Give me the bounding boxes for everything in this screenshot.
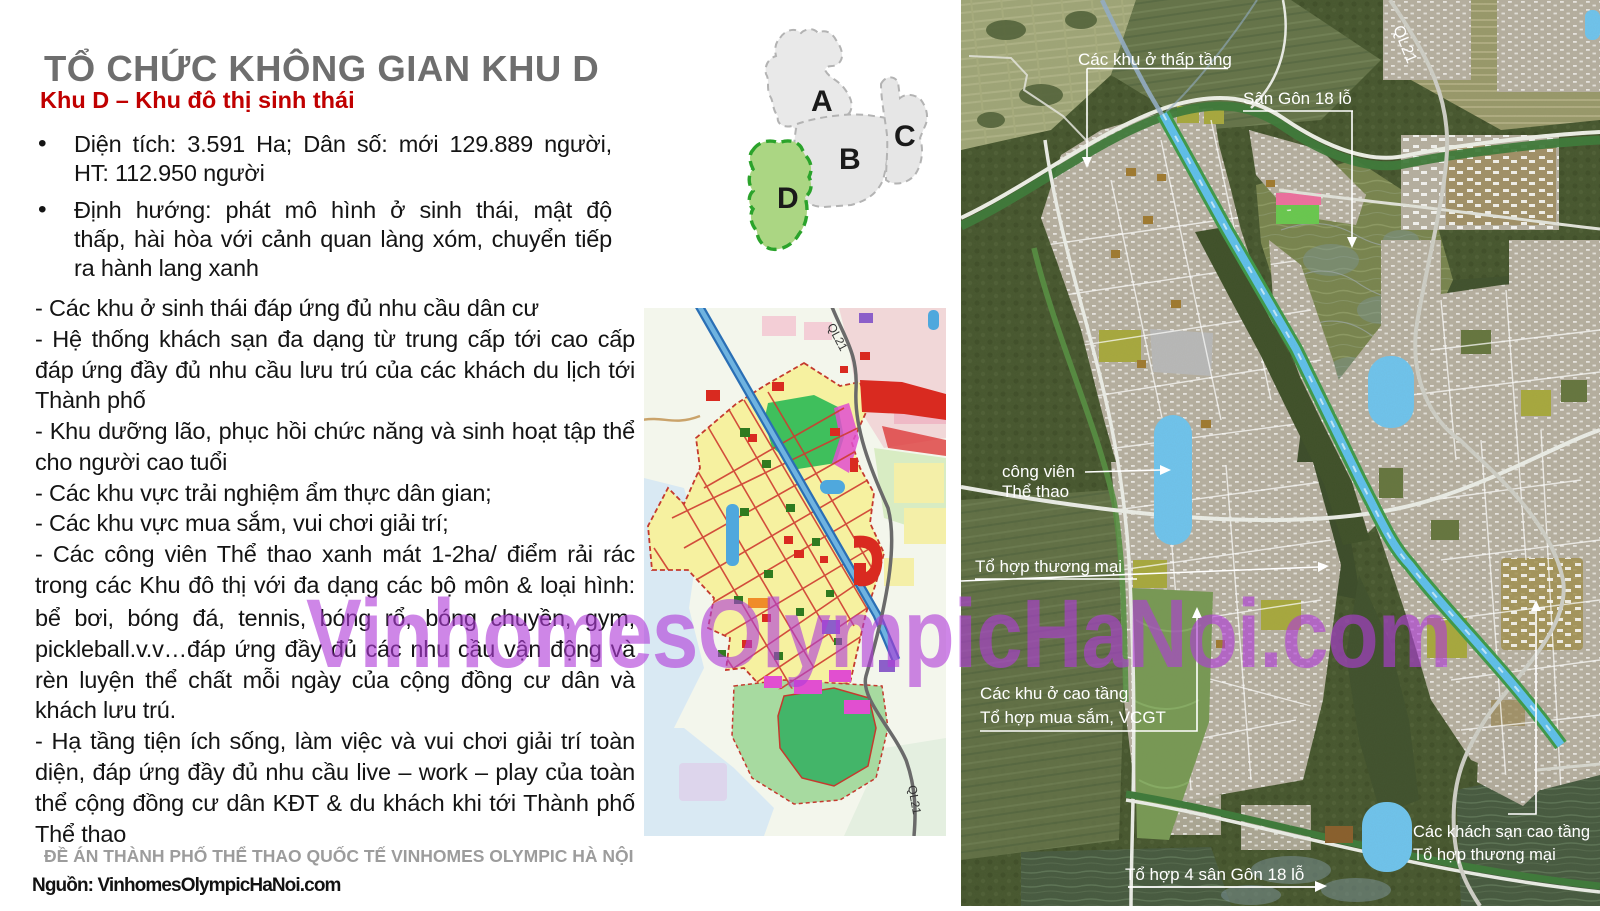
svg-text:A: A [811,85,833,118]
svg-text:C: C [894,120,916,153]
svg-text:Các khách sạn cao tầng: Các khách sạn cao tầng [1413,823,1590,841]
svg-text:B: B [839,143,861,176]
svg-text:Thể thao: Thể thao [1002,482,1069,501]
svg-text:Tổ hợp thương mại: Tổ hợp thương mại [1413,846,1556,864]
svg-text:Tổ hợp mua sắm, VCGT: Tổ hợp mua sắm, VCGT [980,708,1166,727]
svg-text:D: D [777,182,799,215]
svg-text:Các khu ở thấp tầng: Các khu ở thấp tầng [1078,50,1232,69]
svg-text:Sân Gôn 18 lỗ: Sân Gôn 18 lỗ [1243,89,1352,108]
svg-text:Tổ hợp 4 sân Gôn 18 lỗ: Tổ hợp 4 sân Gôn 18 lỗ [1125,865,1304,884]
svg-text:công viên: công viên [1002,462,1075,481]
svg-text:Tổ hợp thương mại: Tổ hợp thương mại [975,557,1122,576]
